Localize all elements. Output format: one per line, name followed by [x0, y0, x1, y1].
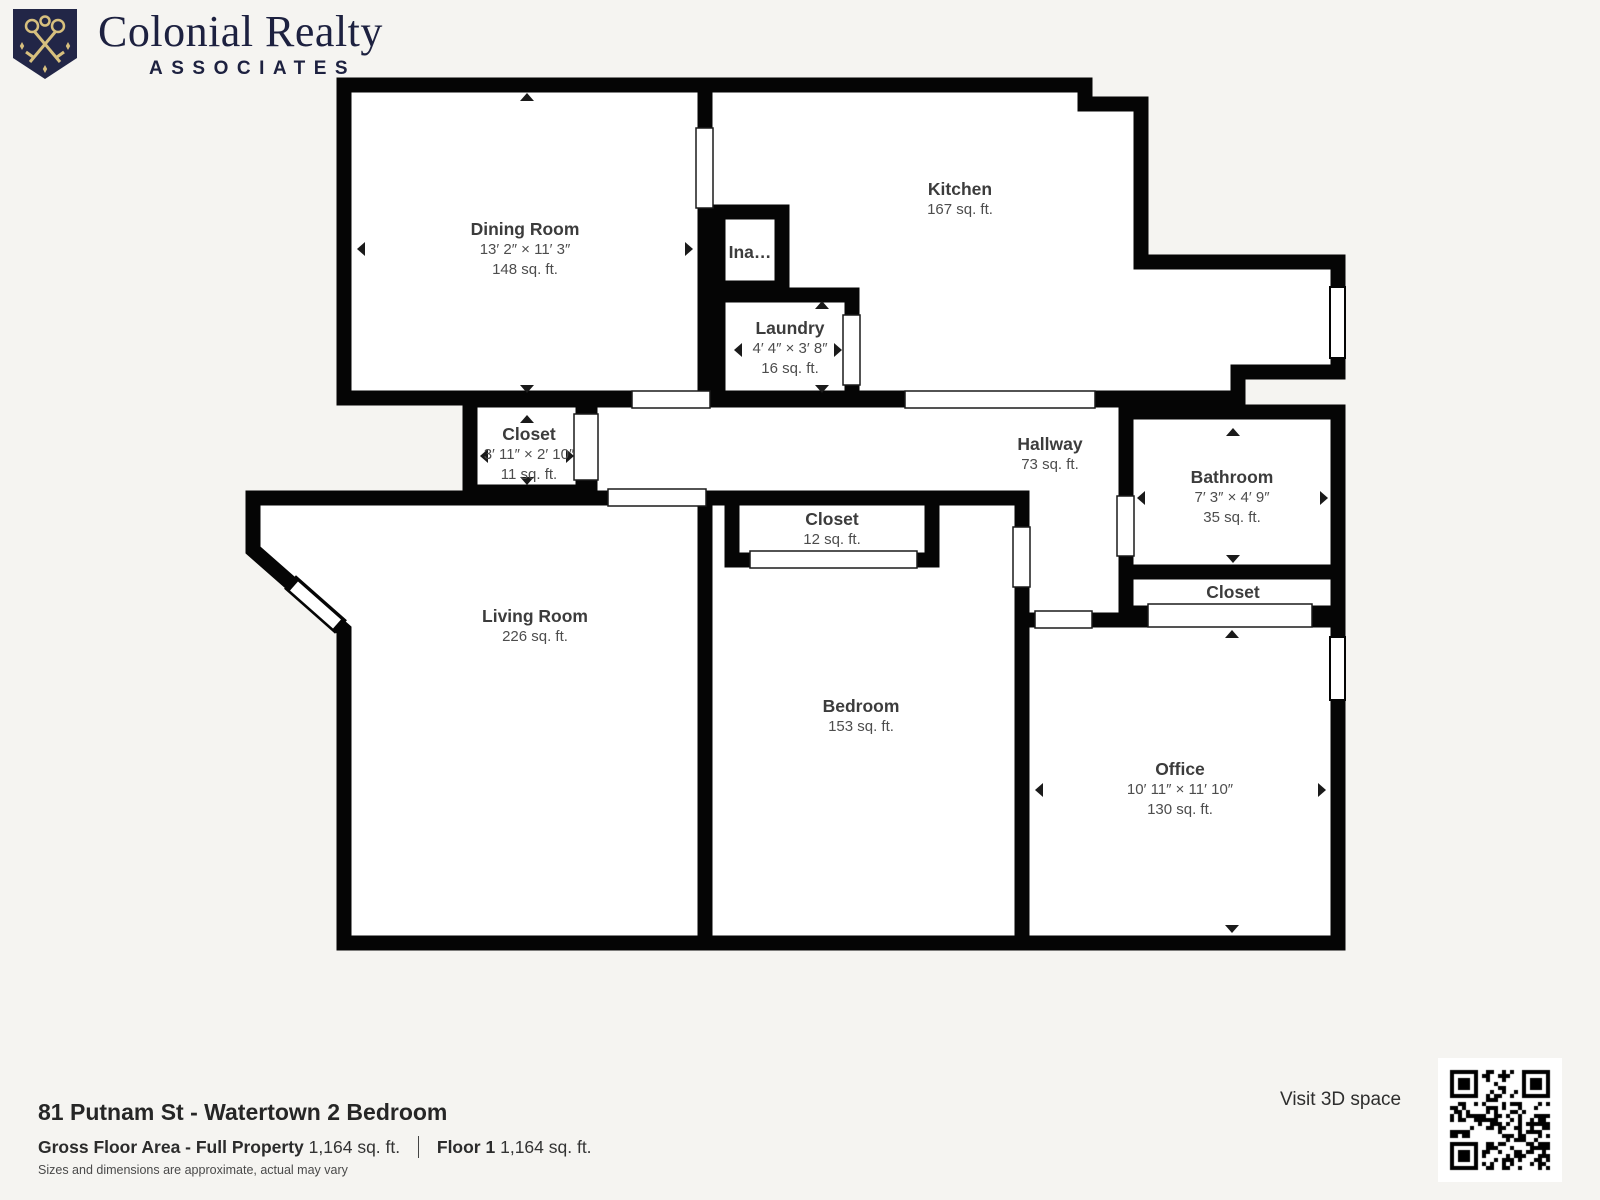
stats-divider — [418, 1136, 419, 1158]
floor-label: Floor 1 — [437, 1137, 495, 1157]
qr-code — [1438, 1058, 1562, 1182]
door-bathroom-hallway — [1117, 496, 1134, 556]
floor-value: 1,164 sq. ft. — [500, 1137, 591, 1157]
gross-area-value: 1,164 sq. ft. — [309, 1137, 400, 1157]
window-kitchen-right — [1330, 287, 1345, 358]
floorplan — [0, 0, 1600, 1200]
door-hallway-office — [1035, 611, 1092, 628]
window-office-right — [1330, 637, 1345, 700]
door-closet-office — [1148, 604, 1312, 627]
door-living-hallway — [608, 489, 706, 506]
room-office-floor — [1022, 620, 1338, 943]
door-bedroom-hallway — [1013, 527, 1030, 587]
opening-laundry-kitchen — [843, 315, 860, 385]
gross-area-label: Gross Floor Area - Full Property — [38, 1137, 304, 1157]
visit-3d-link[interactable]: Visit 3D space — [1280, 1089, 1401, 1111]
opening-dining-hallway — [632, 391, 710, 408]
floor-area-stats: Gross Floor Area - Full Property 1,164 s… — [38, 1136, 592, 1158]
disclaimer-text: Sizes and dimensions are approximate, ac… — [38, 1163, 348, 1177]
room-living-floor — [253, 498, 705, 943]
door-closet-hall — [574, 414, 598, 480]
property-title: 81 Putnam St - Watertown 2 Bedroom — [38, 1099, 447, 1126]
door-closet-bedroom — [750, 551, 917, 568]
room-inaccessible-floor — [718, 212, 782, 288]
opening-kitchen-hallway — [905, 391, 1095, 408]
room-dining-floor — [344, 85, 705, 398]
opening-dining-kitchen — [696, 128, 713, 208]
